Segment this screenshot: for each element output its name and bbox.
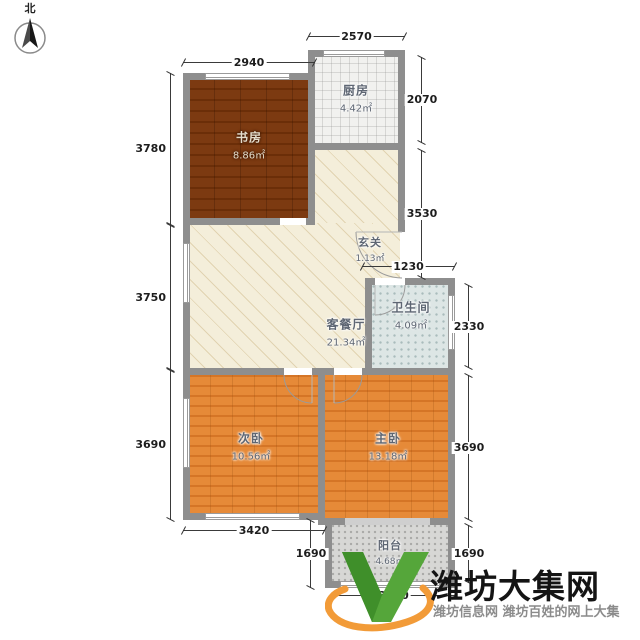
bath-name: 卫生间: [391, 299, 430, 316]
dim-left-second: 3690: [170, 370, 171, 520]
label-living: 客餐厅 21.34㎡: [326, 316, 365, 349]
dim-right-master: 3690: [468, 375, 469, 520]
watermark-logo-icon: [325, 542, 445, 637]
label-entry: 玄关 1.13㎡: [355, 234, 384, 264]
dim-second-bottom: 3420: [183, 530, 325, 531]
master-bedroom-area: 13.18㎡: [369, 448, 408, 463]
living-name: 客餐厅: [326, 316, 365, 333]
kitchen-name: 厨房: [340, 82, 372, 99]
dim-entry-width: 1230: [362, 266, 455, 267]
second-bedroom-name: 次卧: [232, 430, 271, 447]
dim-study-top: 2940: [183, 62, 315, 63]
dim-right-kitchen: 2070: [421, 57, 422, 143]
dim-kitchen-top: 2570: [308, 36, 405, 37]
dim-left-living: 3750: [170, 225, 171, 370]
master-bedroom-name: 主卧: [369, 430, 408, 447]
dim-right-corridor: 3530: [421, 150, 422, 278]
living-area: 21.34㎡: [326, 334, 365, 349]
dim-right-bath: 2330: [468, 285, 469, 368]
label-bath: 卫生间 4.09㎡: [391, 299, 430, 332]
watermark-subtitle: 潍坊信息网 潍坊百姓的网上大集: [433, 601, 620, 620]
label-kitchen: 厨房 4.42㎡: [340, 82, 372, 115]
bath-area: 4.09㎡: [391, 317, 430, 332]
second-bedroom-area: 10.56㎡: [232, 448, 271, 463]
study-area: 8.86㎡: [233, 147, 265, 162]
door-swing-arcs: [0, 0, 640, 640]
label-study: 书房 8.86㎡: [233, 129, 265, 162]
label-second-bedroom: 次卧 10.56㎡: [232, 430, 271, 463]
label-master-bedroom: 主卧 13.18㎡: [369, 430, 408, 463]
dim-balcony-left: 1690: [310, 520, 311, 588]
study-name: 书房: [233, 129, 265, 146]
compass-icon: [8, 12, 52, 70]
floorplan-canvas: 2940 2570 3780 3750 3690 2070 3530 1230 …: [0, 0, 640, 640]
kitchen-area: 4.42㎡: [340, 100, 372, 115]
entry-name: 玄关: [355, 234, 384, 250]
dim-left-study: 3780: [170, 73, 171, 225]
entry-area: 1.13㎡: [355, 251, 384, 264]
